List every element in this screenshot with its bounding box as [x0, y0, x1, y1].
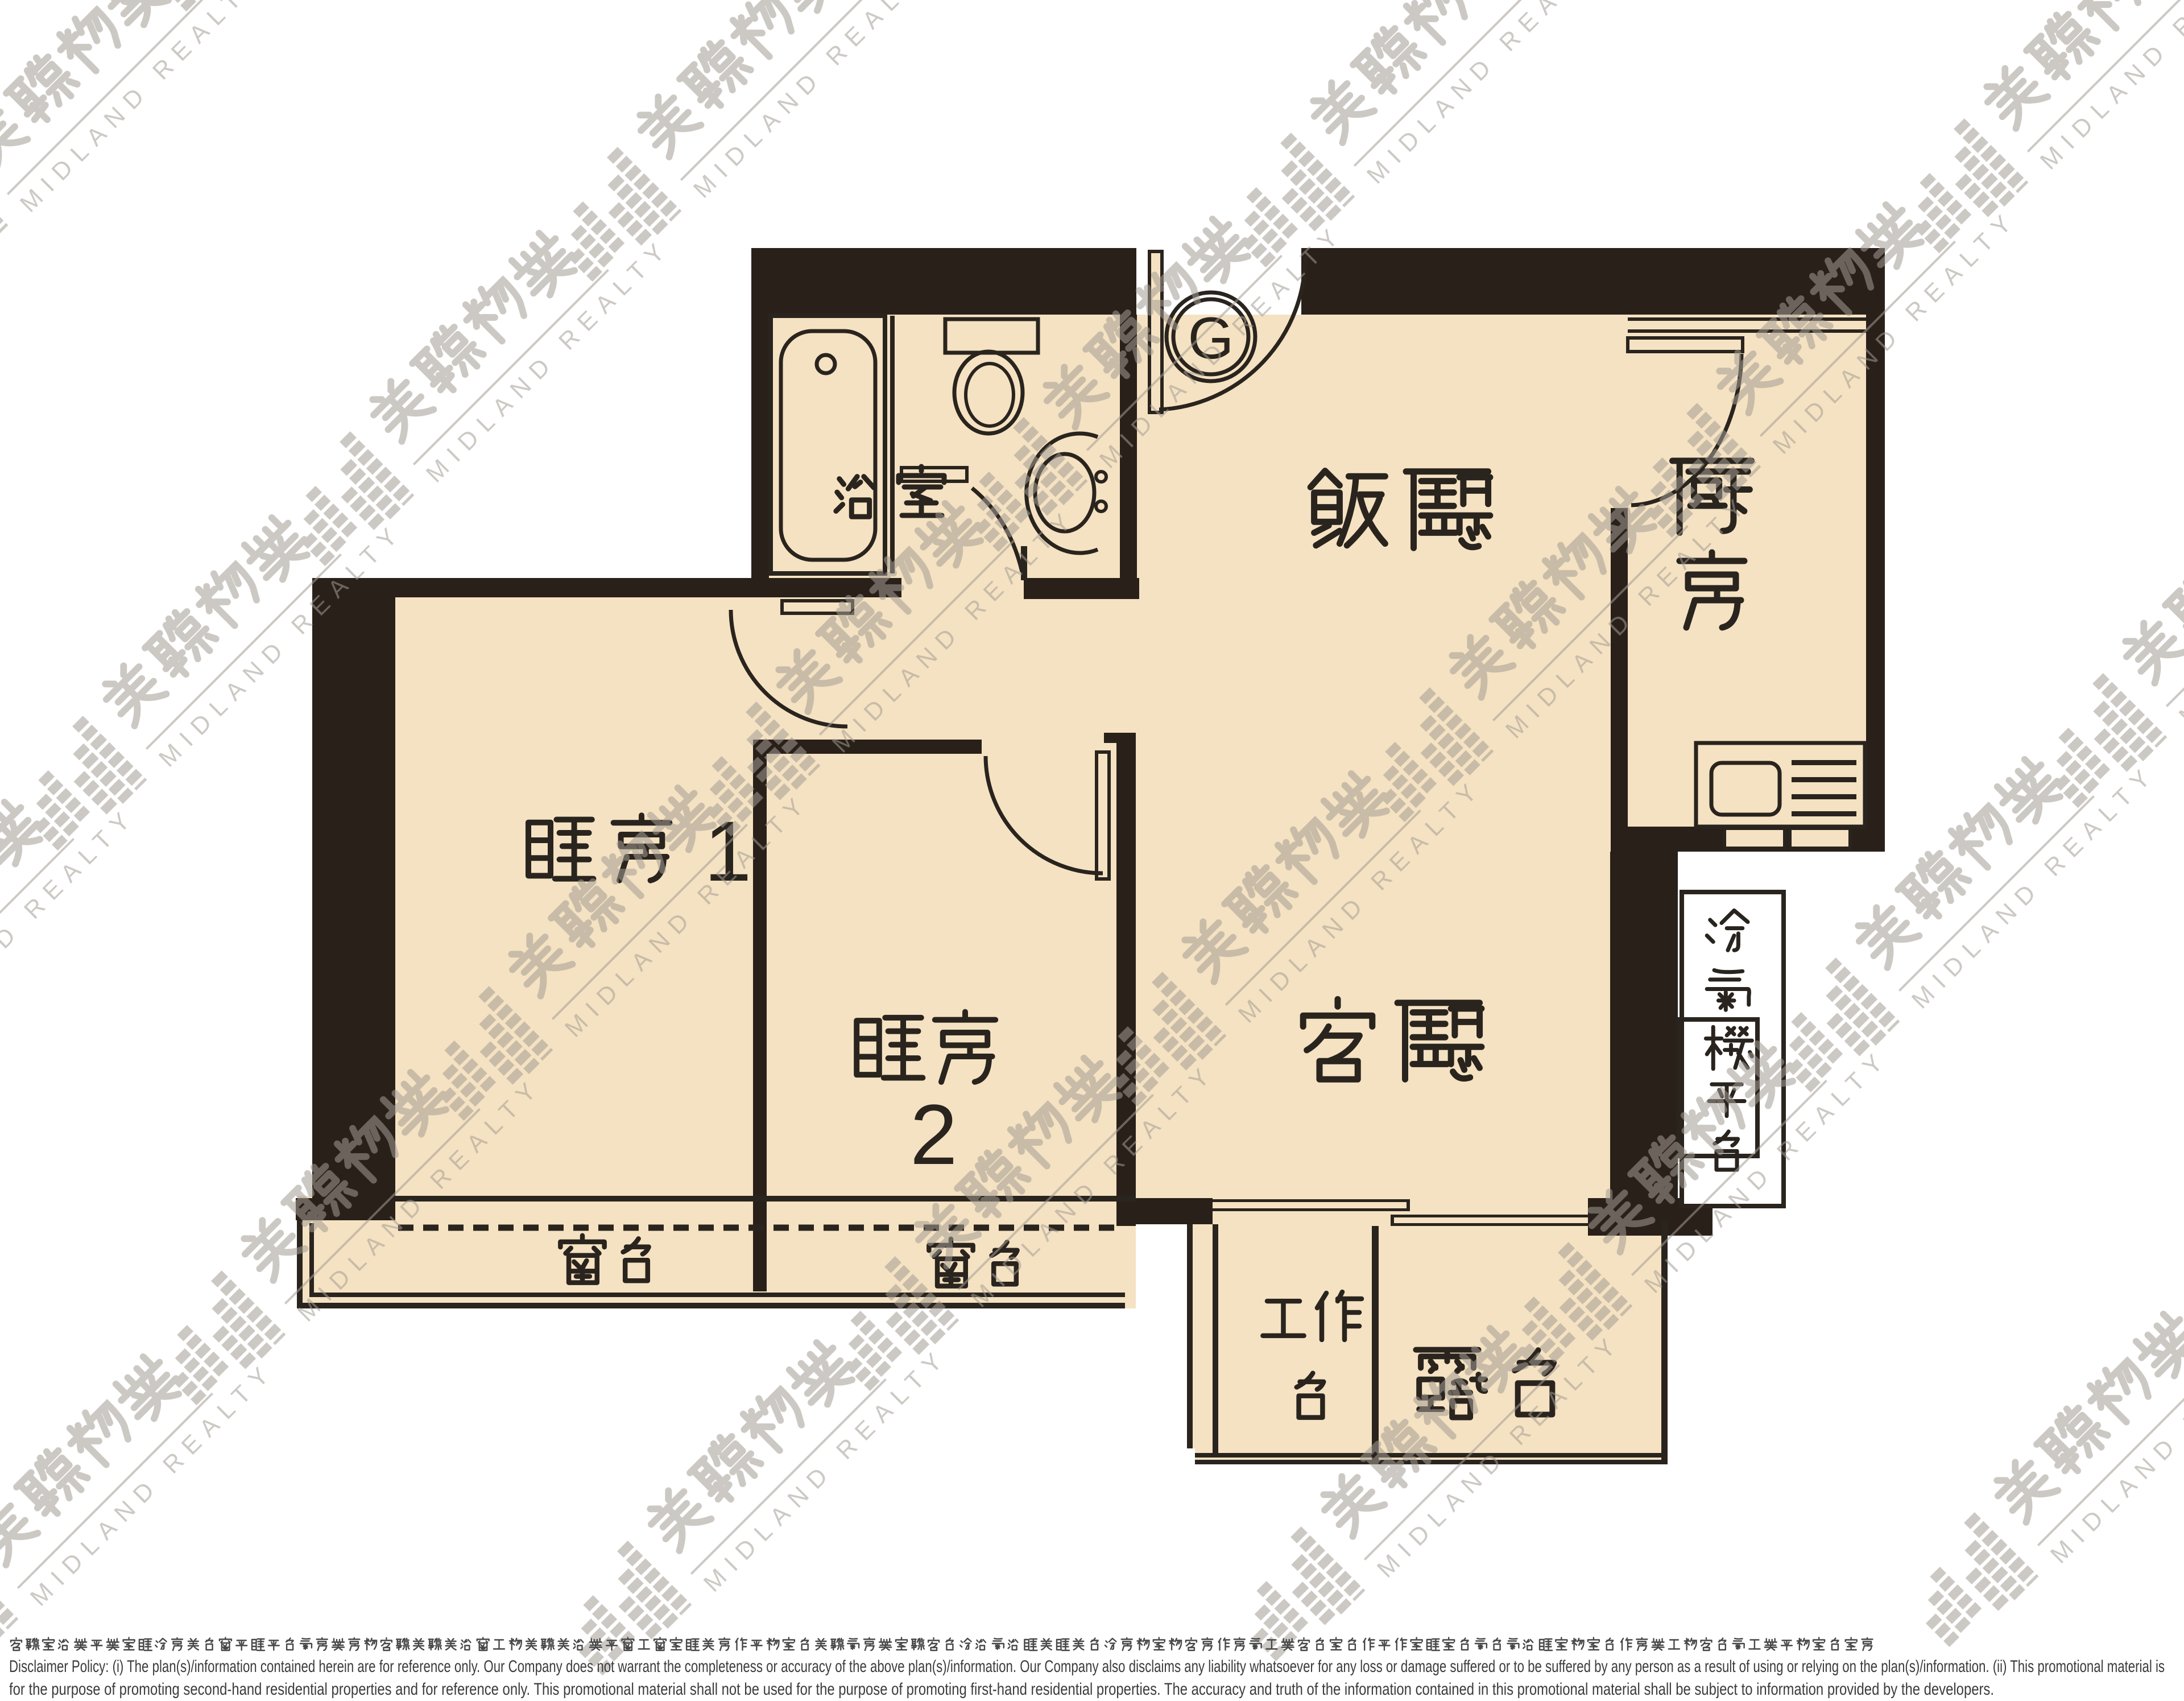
svg-text:for the purpose of promoting s: for the purpose of promoting second-hand…: [9, 1680, 1994, 1699]
svg-text:Disclaimer Policy: (i) The pla: Disclaimer Policy: (i) The plan(s)/infor…: [9, 1657, 2165, 1676]
svg-text:2: 2: [910, 1087, 957, 1182]
